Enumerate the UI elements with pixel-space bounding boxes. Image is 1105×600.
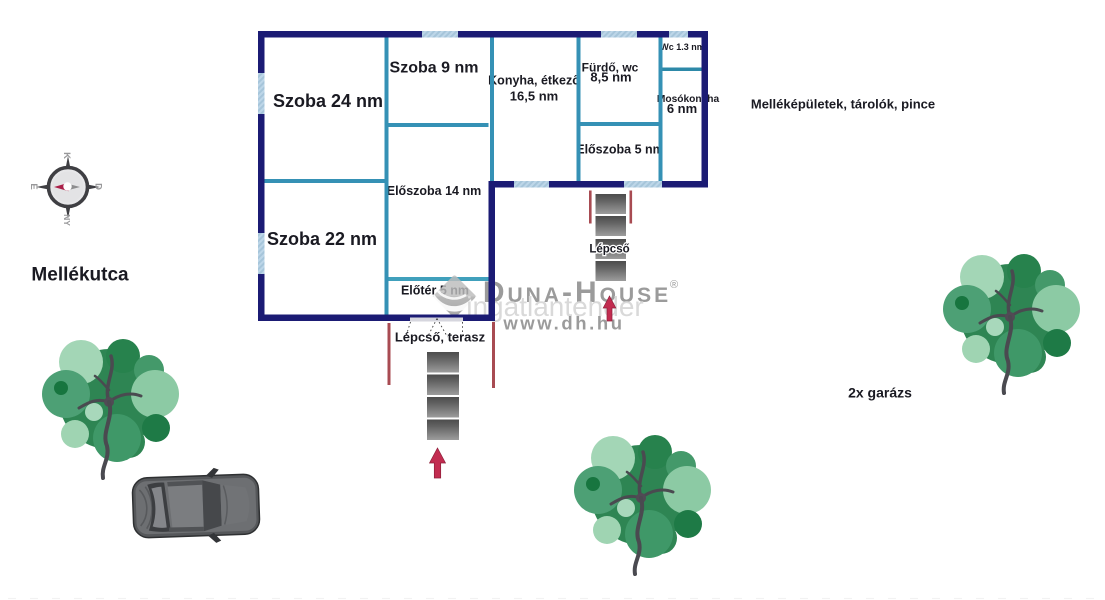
svg-text:Melléképületek, tárolók, pince: Melléképületek, tárolók, pince: [751, 97, 935, 112]
svg-text:Mellékutca: Mellékutca: [31, 265, 129, 286]
svg-text:8,5 nm: 8,5 nm: [590, 70, 631, 85]
svg-text:Szoba 24 nm: Szoba 24 nm: [273, 91, 383, 111]
svg-text:É: É: [28, 183, 39, 189]
svg-text:Előszoba 14 nm: Előszoba 14 nm: [387, 184, 481, 198]
svg-text:D: D: [93, 183, 104, 190]
svg-text:Lépcső: Lépcső: [589, 244, 629, 256]
svg-text:Előszoba 5 nm: Előszoba 5 nm: [576, 143, 664, 157]
svg-text:Lépcső, terasz: Lépcső, terasz: [395, 330, 486, 345]
svg-text:www.dh.hu: www.dh.hu: [502, 313, 624, 334]
svg-text:Konyha, étkező: Konyha, étkező: [488, 74, 580, 88]
svg-text:16,5 nm: 16,5 nm: [510, 89, 558, 104]
svg-text:6 nm: 6 nm: [667, 101, 697, 116]
svg-text:Szoba 9 nm: Szoba 9 nm: [390, 60, 479, 77]
svg-text:2x garázs: 2x garázs: [848, 385, 912, 401]
svg-text:®: ®: [670, 279, 678, 291]
svg-text:K: K: [61, 152, 72, 159]
svg-text:Szoba 22 nm: Szoba 22 nm: [267, 229, 377, 249]
svg-text:Wc 1.3 nm: Wc 1.3 nm: [660, 42, 705, 52]
svg-text:NY: NY: [62, 214, 72, 226]
